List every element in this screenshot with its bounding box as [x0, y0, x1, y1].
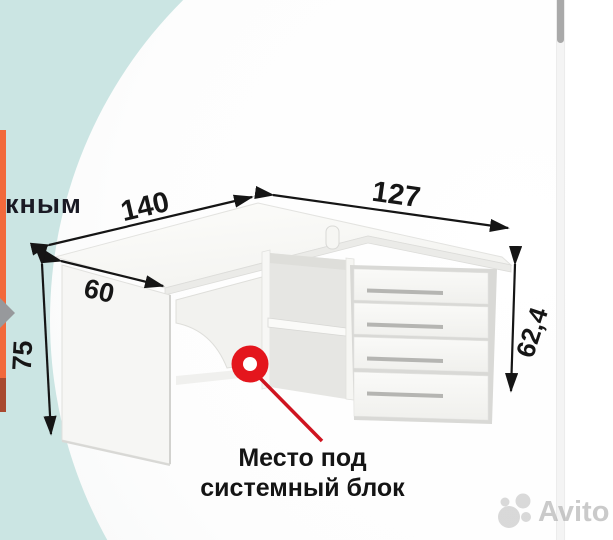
side-panel	[62, 265, 170, 464]
drawer-2	[354, 303, 488, 338]
dimension-label-75: 75	[7, 340, 40, 372]
callout-line-2: системный блок	[195, 473, 410, 503]
drawer-1	[354, 269, 488, 304]
system-unit-callout: Место под системный блок	[195, 443, 410, 503]
dimension-label-127: 127	[370, 176, 423, 215]
scrollbar-track[interactable]	[556, 0, 565, 540]
right-gutter	[566, 0, 613, 540]
system-unit-marker-hole	[243, 357, 257, 371]
callout-line-1: Место под	[195, 443, 410, 473]
dimension-arrow-62-4	[511, 264, 515, 391]
cropped-word: кным	[5, 189, 82, 220]
dimension-arrow-75	[42, 264, 51, 434]
avito-watermark-text: Avito	[538, 496, 609, 529]
scrollbar-thumb[interactable]	[557, 0, 564, 43]
avito-watermark: Avito	[496, 492, 609, 532]
cable-grommet	[326, 226, 339, 249]
product-photo-stage: кным 140 127 60 75 62,4 Место под систем…	[0, 0, 613, 540]
avito-logo-icon	[496, 492, 536, 532]
drawer-3	[354, 337, 488, 372]
